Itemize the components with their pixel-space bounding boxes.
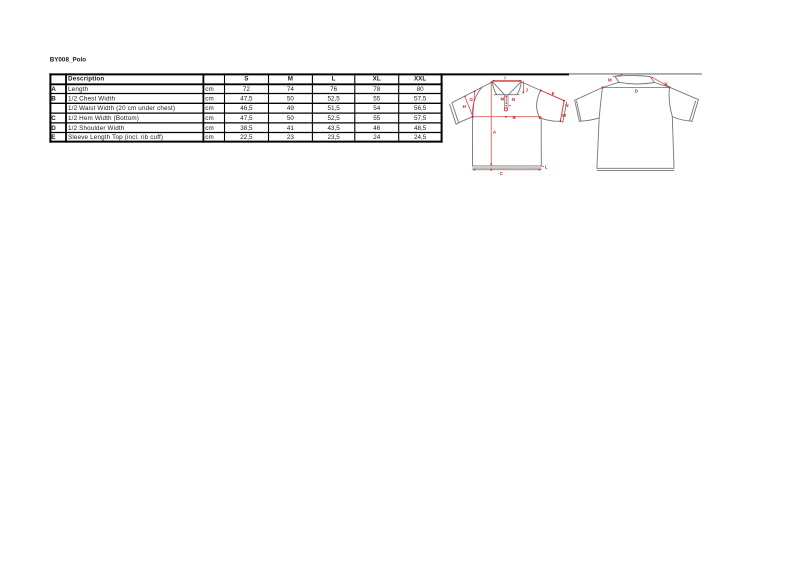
svg-text:41: 41 bbox=[287, 125, 295, 132]
svg-text:L: L bbox=[545, 164, 548, 169]
svg-text:47,5: 47,5 bbox=[240, 96, 253, 103]
svg-text:A: A bbox=[51, 86, 56, 93]
svg-text:S: S bbox=[244, 76, 248, 83]
svg-text:46: 46 bbox=[373, 125, 381, 132]
svg-text:M: M bbox=[288, 76, 293, 83]
svg-text:M: M bbox=[608, 77, 612, 82]
svg-text:Sleeve Length Top (incl. rib c: Sleeve Length Top (incl. rib cuff) bbox=[68, 134, 163, 141]
svg-text:H: H bbox=[463, 104, 467, 109]
svg-text:55: 55 bbox=[373, 115, 381, 122]
svg-text:B: B bbox=[513, 115, 517, 120]
svg-text:80: 80 bbox=[417, 86, 425, 93]
svg-text:72: 72 bbox=[243, 86, 251, 93]
svg-text:L: L bbox=[332, 76, 336, 83]
svg-text:48,5: 48,5 bbox=[414, 125, 427, 132]
svg-text:E: E bbox=[552, 91, 555, 96]
svg-text:74: 74 bbox=[287, 86, 295, 93]
svg-text:cm: cm bbox=[205, 125, 213, 132]
svg-text:cm: cm bbox=[205, 134, 213, 141]
svg-text:49: 49 bbox=[287, 105, 295, 112]
svg-text:51,5: 51,5 bbox=[327, 105, 340, 112]
svg-text:22,5: 22,5 bbox=[240, 134, 253, 141]
svg-text:M: M bbox=[562, 113, 566, 118]
svg-text:E: E bbox=[51, 134, 55, 141]
svg-text:N: N bbox=[565, 103, 569, 108]
svg-text:43,5: 43,5 bbox=[327, 125, 340, 132]
svg-text:52,5: 52,5 bbox=[327, 115, 340, 122]
svg-text:78: 78 bbox=[373, 86, 381, 93]
svg-text:56,5: 56,5 bbox=[414, 105, 427, 112]
svg-text:24: 24 bbox=[373, 134, 381, 141]
svg-text:C: C bbox=[500, 171, 504, 176]
svg-text:cm: cm bbox=[205, 96, 213, 103]
svg-text:cm: cm bbox=[205, 115, 213, 122]
svg-text:cm: cm bbox=[205, 105, 213, 112]
svg-text:54: 54 bbox=[373, 105, 381, 112]
svg-text:BY008_Polo: BY008_Polo bbox=[50, 56, 87, 63]
svg-text:D: D bbox=[51, 125, 56, 132]
svg-text:1/2 Waist Width (20 cm under c: 1/2 Waist Width (20 cm under chest) bbox=[68, 105, 175, 112]
svg-text:D: D bbox=[635, 88, 639, 93]
svg-text:55: 55 bbox=[373, 96, 381, 103]
svg-text:50: 50 bbox=[287, 115, 295, 122]
svg-text:23,5: 23,5 bbox=[327, 134, 340, 141]
svg-text:46,5: 46,5 bbox=[240, 105, 253, 112]
svg-text:57,5: 57,5 bbox=[414, 115, 427, 122]
svg-text:XL: XL bbox=[373, 76, 381, 83]
svg-text:57,5: 57,5 bbox=[414, 96, 427, 103]
svg-text:C: C bbox=[51, 115, 56, 122]
svg-text:XXL: XXL bbox=[414, 76, 426, 83]
svg-text:Length: Length bbox=[68, 86, 89, 93]
svg-text:1/2 Hem Width (Bottom): 1/2 Hem Width (Bottom) bbox=[68, 115, 139, 122]
svg-text:A: A bbox=[493, 130, 497, 135]
svg-text:1/2 Chest Width: 1/2 Chest Width bbox=[68, 96, 116, 103]
svg-text:23: 23 bbox=[287, 134, 295, 141]
svg-text:M: M bbox=[500, 97, 504, 102]
svg-text:47,5: 47,5 bbox=[240, 115, 253, 122]
svg-text:1/2 Shoulder Width: 1/2 Shoulder Width bbox=[68, 125, 125, 132]
svg-text:38,5: 38,5 bbox=[240, 125, 253, 132]
svg-text:cm: cm bbox=[205, 86, 213, 93]
svg-text:G: G bbox=[469, 97, 473, 102]
svg-text:I: I bbox=[504, 76, 505, 81]
svg-text:J: J bbox=[525, 87, 528, 92]
svg-text:50: 50 bbox=[287, 96, 295, 103]
svg-text:N: N bbox=[512, 97, 516, 102]
svg-text:52,5: 52,5 bbox=[327, 96, 340, 103]
svg-text:B: B bbox=[51, 96, 56, 103]
svg-text:76: 76 bbox=[330, 86, 338, 93]
svg-text:Description: Description bbox=[68, 76, 104, 83]
svg-text:24,5: 24,5 bbox=[414, 134, 427, 141]
